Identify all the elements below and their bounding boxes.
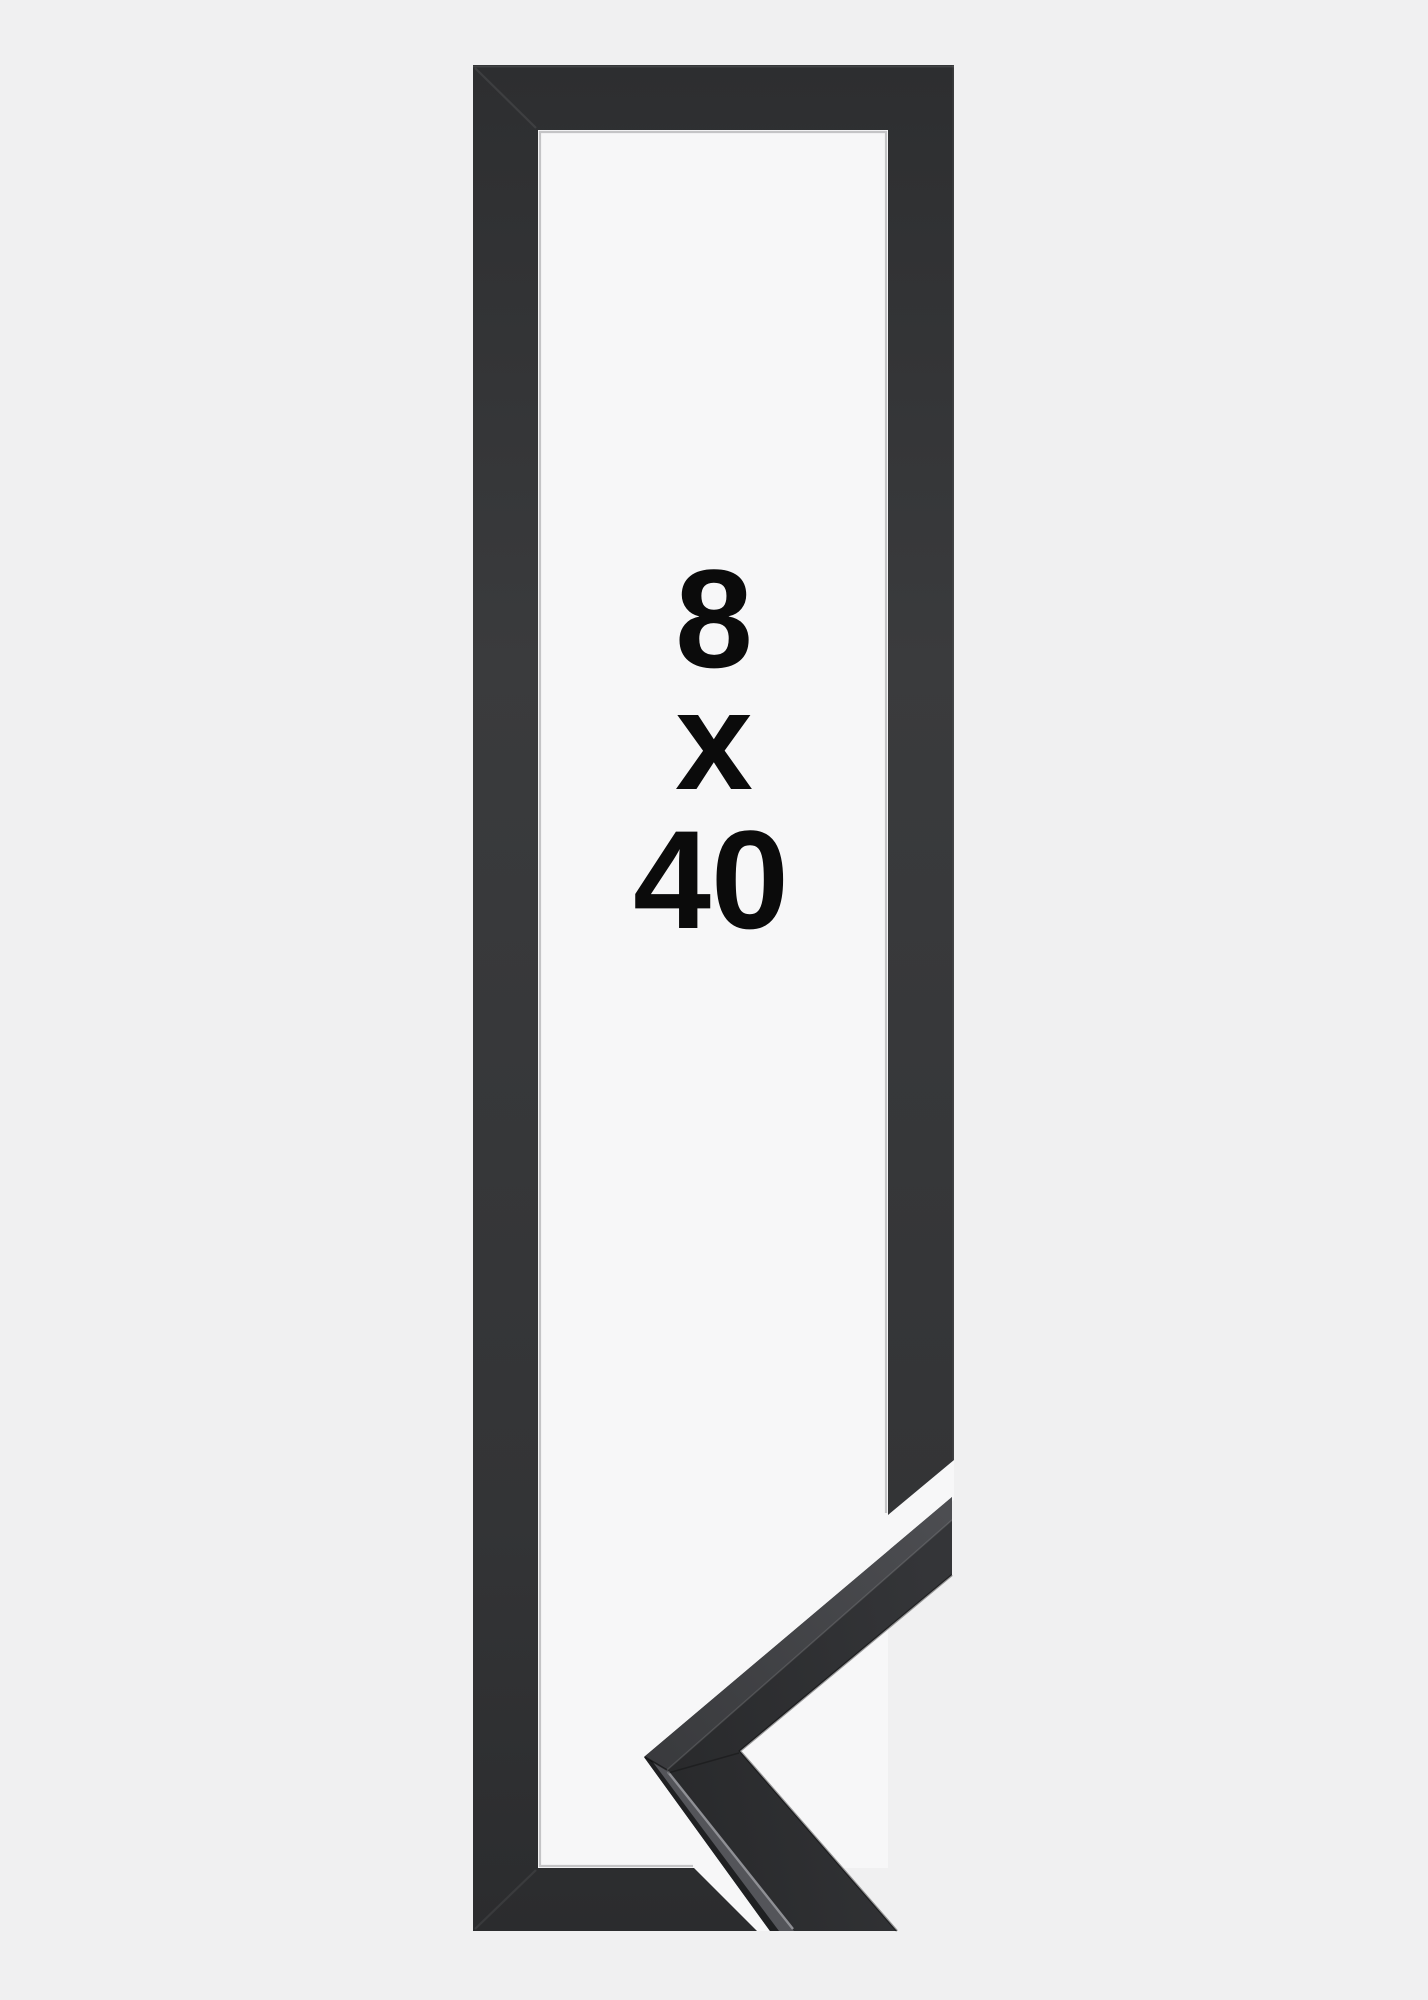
product-image: 8 x 40 [0, 0, 1428, 2000]
size-label-height: 40 [633, 801, 789, 958]
frame-product-photo: 8 x 40 [0, 0, 1428, 2000]
size-label-separator: x [675, 662, 753, 819]
